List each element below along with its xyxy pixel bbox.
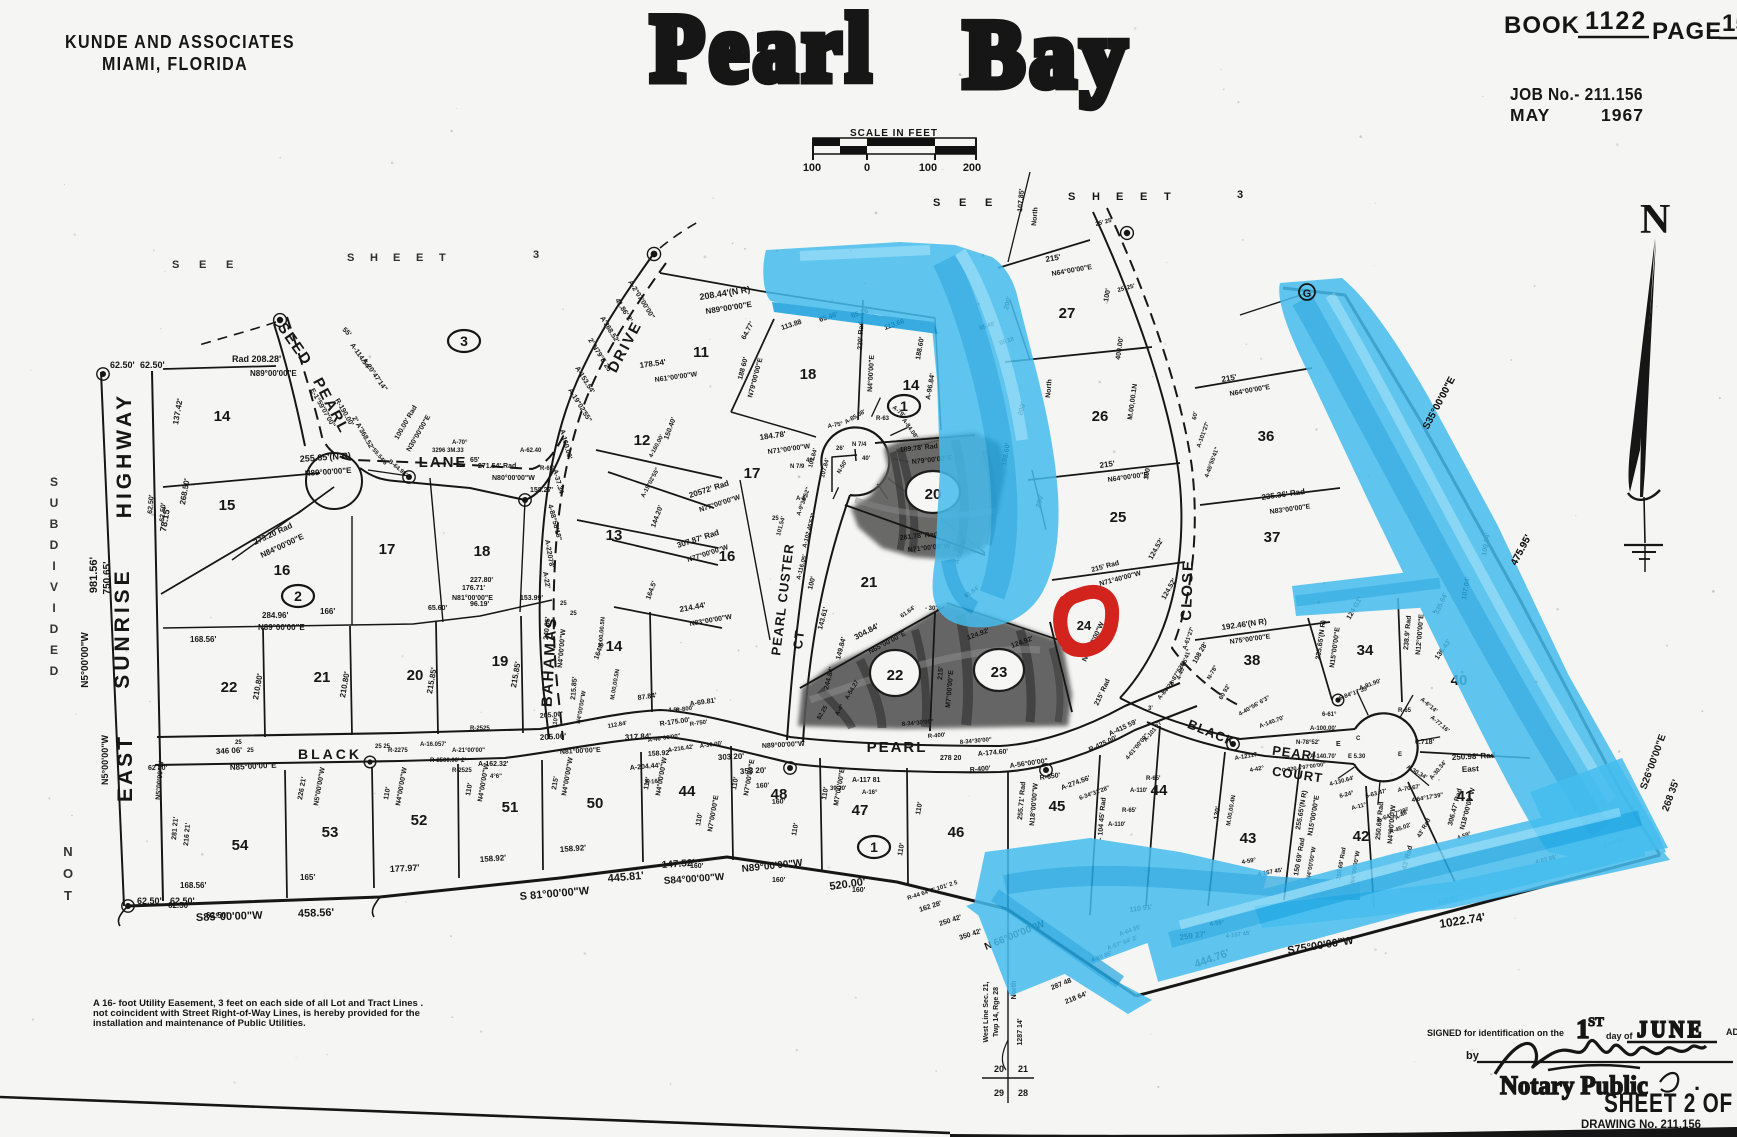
svg-text:CLOSE: CLOSE <box>1178 559 1197 621</box>
svg-text:284.96': 284.96' <box>262 611 288 620</box>
svg-text:BLACK: BLACK <box>298 746 362 762</box>
svg-text:62.50': 62.50' <box>140 360 165 370</box>
svg-text:40': 40' <box>806 458 815 464</box>
svg-text:271.54' Rad: 271.54' Rad <box>478 463 516 470</box>
svg-text:165': 165' <box>300 873 315 882</box>
svg-text:458.56': 458.56' <box>298 907 335 920</box>
svg-text:E: E <box>199 259 206 271</box>
svg-text:160': 160' <box>690 863 704 870</box>
svg-text:25: 25 <box>772 516 779 522</box>
svg-text:N5°00'00"W: N5°00'00"W <box>80 632 91 688</box>
svg-text:19: 19 <box>492 653 509 670</box>
svg-text:A-117 81: A-117 81 <box>852 777 881 784</box>
svg-text:E: E <box>959 197 966 209</box>
svg-text:S: S <box>50 475 58 489</box>
svg-text:KUNDE AND ASSOCIATES: KUNDE AND ASSOCIATES <box>65 32 295 52</box>
svg-text:17: 17 <box>744 465 761 482</box>
svg-text:15: 15 <box>1722 10 1737 37</box>
svg-text:R-2500.00' 2': R-2500.00' 2' <box>430 758 466 764</box>
svg-text:S85°00'00"W: S85°00'00"W <box>196 910 264 924</box>
svg-text:T: T <box>64 888 72 903</box>
svg-text:A-16.057': A-16.057' <box>420 742 447 748</box>
svg-text:17: 17 <box>379 541 396 558</box>
svg-text:N-78°52': N-78°52' <box>1296 740 1320 746</box>
svg-text:R-65': R-65' <box>1122 808 1137 814</box>
svg-text:A-110': A-110' <box>1130 788 1148 794</box>
svg-text:Pearl: Pearl <box>651 0 876 101</box>
svg-text:44: 44 <box>679 783 696 800</box>
svg-text:D: D <box>50 538 59 552</box>
svg-text:S: S <box>1068 191 1075 203</box>
svg-text:53: 53 <box>322 824 339 841</box>
svg-text:21: 21 <box>1018 1064 1028 1074</box>
svg-text:981.56': 981.56' <box>88 556 100 593</box>
svg-text:A-100.00': A-100.00' <box>1310 726 1337 732</box>
svg-text:21: 21 <box>861 574 878 591</box>
svg-text:25: 25 <box>247 748 254 754</box>
svg-text:R-65: R-65 <box>1398 708 1412 714</box>
svg-text:153.99': 153.99' <box>520 595 543 602</box>
svg-text:T: T <box>439 252 446 264</box>
svg-text:20: 20 <box>994 1064 1004 1074</box>
svg-text:200: 200 <box>963 162 981 174</box>
svg-text:E: E <box>50 643 58 657</box>
svg-text:D: D <box>50 622 59 636</box>
svg-text:I: I <box>52 559 55 573</box>
svg-text:N: N <box>1640 197 1670 243</box>
svg-text:G: G <box>1303 288 1312 300</box>
svg-text:C: C <box>1356 736 1361 742</box>
svg-text:6-61°: 6-61° <box>1322 712 1337 718</box>
svg-text:A-140.70': A-140.70' <box>1310 754 1337 760</box>
svg-text:22: 22 <box>221 679 238 696</box>
svg-text:26': 26' <box>836 446 845 452</box>
svg-text:1287 14': 1287 14' <box>1017 1018 1024 1045</box>
svg-text:East: East <box>1462 764 1480 774</box>
svg-text:I: I <box>52 601 55 615</box>
svg-text:1: 1 <box>870 839 878 855</box>
svg-text:BOOK: BOOK <box>1504 12 1580 39</box>
svg-text:47: 47 <box>852 802 869 819</box>
svg-text:220' Rad: 220' Rad <box>857 321 865 350</box>
svg-text:158.92': 158.92' <box>480 853 507 864</box>
svg-text:45: 45 <box>1049 798 1066 815</box>
svg-text:PEARL: PEARL <box>867 739 928 756</box>
svg-text:N 7/4: N 7/4 <box>852 442 867 448</box>
svg-text:16: 16 <box>274 562 291 579</box>
svg-text:1967: 1967 <box>1601 105 1644 125</box>
svg-text:JOB No.- 211.156: JOB No.- 211.156 <box>1510 84 1643 104</box>
svg-text:S: S <box>347 252 354 264</box>
svg-text:Bay: Bay <box>964 1 1132 107</box>
svg-text:38: 38 <box>1244 652 1261 669</box>
svg-text:227.80': 227.80' <box>470 577 493 584</box>
svg-text:12: 12 <box>634 432 651 449</box>
svg-text:H: H <box>370 252 378 264</box>
svg-text:27: 27 <box>1059 305 1076 322</box>
svg-text:44: 44 <box>1151 782 1168 799</box>
svg-text:N 7/9: N 7/9 <box>790 464 805 470</box>
svg-text:E: E <box>226 259 233 271</box>
svg-text:18: 18 <box>800 366 817 383</box>
svg-text:15: 15 <box>219 497 236 514</box>
svg-text:25: 25 <box>1110 509 1127 526</box>
svg-text:R-63: R-63 <box>876 416 890 422</box>
svg-text:62.50': 62.50' <box>110 360 135 370</box>
svg-text:303 20': 303 20' <box>718 752 745 762</box>
svg-text:52: 52 <box>411 812 428 829</box>
svg-text:E: E <box>416 252 423 264</box>
svg-text:R-2275: R-2275 <box>388 748 408 754</box>
svg-text:4°6": 4°6" <box>490 774 502 780</box>
svg-text:E 5.30: E 5.30 <box>1348 754 1366 760</box>
svg-text:West Line Sec. 21,: West Line Sec. 21, <box>983 981 990 1042</box>
svg-text:1122: 1122 <box>1585 7 1647 35</box>
svg-text:N89°00'00"E: N89°00'00"E <box>250 369 297 378</box>
svg-text:215': 215' <box>937 666 945 680</box>
svg-text:40': 40' <box>862 456 871 462</box>
svg-text:3: 3 <box>533 249 539 261</box>
svg-text:3': 3' <box>1148 706 1153 712</box>
svg-text:168.56': 168.56' <box>180 881 206 890</box>
svg-text:N5°00'00"W: N5°00'00"W <box>100 734 110 785</box>
svg-text:46: 46 <box>948 824 965 841</box>
svg-text:13: 13 <box>606 527 623 544</box>
svg-text:R-2525: R-2525 <box>470 726 490 732</box>
svg-text:T: T <box>1164 191 1171 203</box>
svg-text:29: 29 <box>994 1088 1004 1098</box>
svg-text:62.50': 62.50' <box>168 901 190 910</box>
svg-text:28: 28 <box>1018 1088 1028 1098</box>
svg-text:0.718': 0.718' <box>1415 739 1435 746</box>
svg-text:A-70°: A-70° <box>452 440 468 446</box>
svg-text:205.00': 205.00' <box>540 732 567 742</box>
svg-text:11: 11 <box>693 344 709 361</box>
svg-text:160': 160' <box>772 798 786 806</box>
svg-text:65.60': 65.60' <box>428 605 448 612</box>
svg-text:62 50': 62 50' <box>148 765 168 772</box>
svg-text:N: N <box>63 844 72 859</box>
svg-text:50: 50 <box>587 795 604 812</box>
svg-text:A-62.40: A-62.40 <box>520 448 542 454</box>
svg-text:21: 21 <box>314 669 331 686</box>
svg-text:B: B <box>50 517 59 531</box>
svg-text:0: 0 <box>864 162 870 174</box>
svg-text:3: 3 <box>1237 189 1243 201</box>
svg-text:14: 14 <box>903 377 920 394</box>
svg-text:S: S <box>933 197 940 209</box>
svg-text:LANE: LANE <box>419 454 468 471</box>
svg-text:H: H <box>1092 191 1100 203</box>
svg-text:158.27': 158.27' <box>530 487 553 494</box>
svg-text:AD: AD <box>1726 1027 1737 1037</box>
svg-text:A-16°: A-16° <box>862 790 878 796</box>
svg-text:V: V <box>50 580 58 594</box>
svg-text:E: E <box>393 252 400 264</box>
svg-text:N81°00'00"E: N81°00'00"E <box>452 594 493 602</box>
svg-text:ST: ST <box>1588 1014 1604 1029</box>
svg-text:JUNE: JUNE <box>1637 1017 1705 1042</box>
svg-text:O: O <box>63 866 73 881</box>
svg-text:43: 43 <box>1240 830 1257 847</box>
svg-text:A-110': A-110' <box>1108 822 1126 828</box>
svg-text:3296 3M.33: 3296 3M.33 <box>432 448 464 454</box>
svg-text:25: 25 <box>570 611 577 617</box>
svg-text:25: 25 <box>560 601 567 607</box>
svg-text:168.56': 168.56' <box>190 635 216 644</box>
svg-text:158.92': 158.92' <box>560 843 587 854</box>
svg-text:N89°00'00"E: N89°00'00"E <box>258 623 305 632</box>
svg-text:by: by <box>1466 1050 1480 1062</box>
svg-text:E: E <box>985 197 992 209</box>
svg-text:177.97': 177.97' <box>390 862 420 874</box>
svg-text:CT: CT <box>790 629 807 650</box>
svg-text:installation and maintenance o: installation and maintenance of Public U… <box>93 1018 306 1029</box>
svg-text:20: 20 <box>407 667 424 684</box>
svg-text:346 06': 346 06' <box>216 746 243 756</box>
svg-text:25: 25 <box>235 740 242 746</box>
svg-text:R-65': R-65' <box>1146 776 1161 782</box>
svg-text:22: 22 <box>887 667 904 684</box>
svg-text:176.71': 176.71' <box>462 585 485 592</box>
svg-text:E: E <box>1336 741 1341 748</box>
svg-text:42: 42 <box>1353 828 1370 845</box>
svg-text:R-2525: R-2525 <box>452 768 472 774</box>
svg-text:day of: day of <box>1606 1031 1634 1041</box>
svg-text:Twp 14, Rge 28: Twp 14, Rge 28 <box>993 987 1000 1037</box>
svg-text:96.19': 96.19' <box>470 601 490 608</box>
svg-text:MIAMI, FLORIDA: MIAMI, FLORIDA <box>102 54 248 74</box>
svg-text:HIGHWAY: HIGHWAY <box>113 392 136 518</box>
svg-text:E: E <box>1116 191 1123 203</box>
svg-text:160': 160' <box>756 782 770 790</box>
svg-text:18: 18 <box>474 543 491 560</box>
svg-text:26: 26 <box>1092 408 1109 425</box>
svg-text:A-21°00'00": A-21°00'00" <box>452 748 485 754</box>
svg-text:SIGNED for identification on: SIGNED for identification on the <box>1427 1028 1564 1038</box>
svg-text:2: 2 <box>294 588 302 604</box>
svg-text:24: 24 <box>1077 618 1092 633</box>
svg-text:N80°00'00"W: N80°00'00"W <box>492 474 535 482</box>
svg-text:D: D <box>50 664 59 678</box>
svg-text:160': 160' <box>852 887 866 894</box>
svg-text:100: 100 <box>803 162 821 174</box>
svg-text:36: 36 <box>1258 428 1275 445</box>
svg-text:14: 14 <box>214 408 231 425</box>
svg-text:34: 34 <box>1357 642 1374 659</box>
svg-text:3: 3 <box>460 333 468 349</box>
svg-text:25 25: 25 25 <box>375 744 391 750</box>
svg-text:U: U <box>50 496 59 510</box>
svg-text:14: 14 <box>606 638 623 655</box>
svg-text:E: E <box>1398 752 1402 758</box>
svg-text:54: 54 <box>232 837 249 854</box>
svg-text:SHEET 2 OF: SHEET 2 OF <box>1604 1088 1733 1118</box>
svg-text:MAY: MAY <box>1510 105 1550 125</box>
svg-text:E: E <box>1140 191 1147 203</box>
svg-text:S: S <box>172 259 179 271</box>
svg-text:37: 37 <box>1264 529 1281 546</box>
svg-text:100: 100 <box>919 162 937 174</box>
svg-text:51: 51 <box>502 799 519 816</box>
svg-text:PAGE: PAGE <box>1652 18 1722 45</box>
svg-text:Rad 208.28': Rad 208.28' <box>232 354 281 364</box>
svg-text:166': 166' <box>320 607 335 616</box>
svg-text:160': 160' <box>772 877 786 884</box>
svg-text:23: 23 <box>991 664 1008 681</box>
svg-text:278 20: 278 20 <box>940 755 962 762</box>
